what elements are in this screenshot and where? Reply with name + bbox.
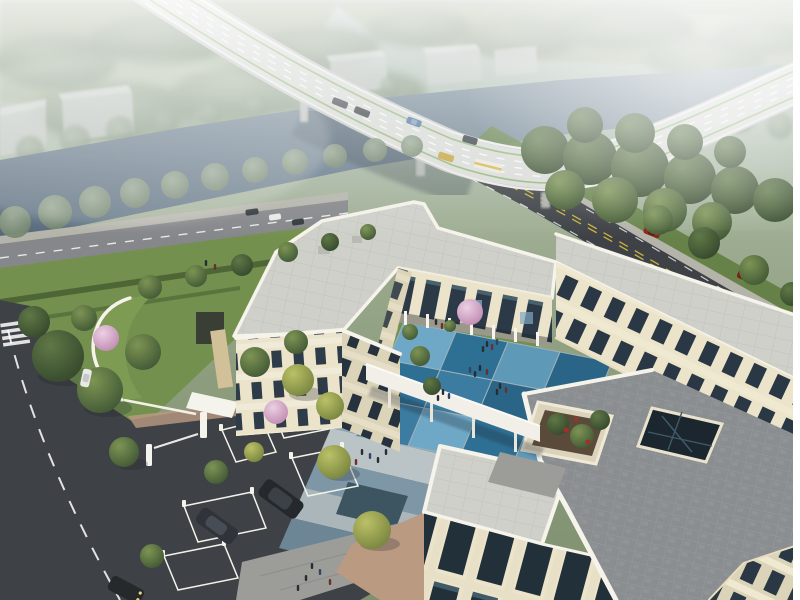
aerial-rendering: [0, 0, 800, 600]
haze-topright: [470, 0, 800, 230]
right-border: [793, 0, 800, 600]
glass-panel: [520, 312, 533, 324]
rendering-canvas: [0, 0, 800, 600]
gate-pillar: [200, 412, 207, 438]
